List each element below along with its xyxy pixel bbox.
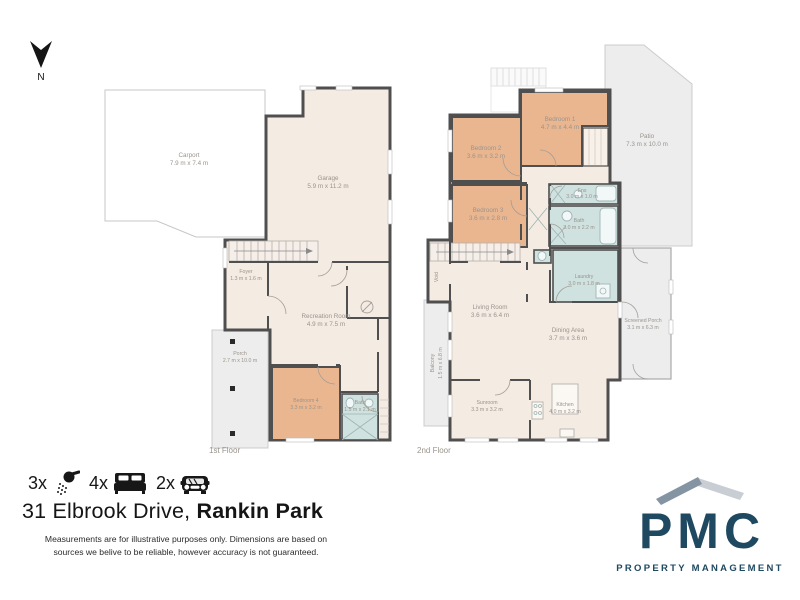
svg-text:3.3 m x 3.2 m: 3.3 m x 3.2 m [290, 405, 321, 411]
svg-text:Porch: Porch [233, 351, 247, 357]
bedroom1-robe [583, 128, 608, 166]
svg-text:3.1 m x 6.3 m: 3.1 m x 6.3 m [627, 325, 658, 331]
stairs-1st [229, 241, 318, 261]
svg-text:Bedroom 1: Bedroom 1 [545, 116, 576, 123]
feature-summary: 3x 4x 2x [28, 470, 210, 496]
svg-text:1.5 m x 6.8 m: 1.5 m x 6.8 m [438, 347, 444, 378]
svg-text:1.3 m x 1.6 m: 1.3 m x 1.6 m [230, 276, 261, 282]
svg-text:3.7 m x 3.6 m: 3.7 m x 3.6 m [549, 335, 587, 342]
feature-bedrooms: 4x [89, 471, 147, 495]
logo-tagline: PROPERTY MANAGEMENT [612, 563, 788, 574]
roof-icon [612, 474, 788, 505]
property-address: 31 Elbrook Drive, Rankin Park [22, 499, 323, 524]
stairs-2nd [430, 243, 520, 261]
svg-text:4.7 m x 4.4 m: 4.7 m x 4.4 m [541, 124, 579, 131]
north-arrow-glyph [30, 41, 52, 68]
svg-text:3.0 m x 1.8 m: 3.0 m x 1.8 m [568, 281, 599, 287]
svg-text:Patio: Patio [640, 133, 655, 140]
room-porch [212, 330, 268, 448]
floor2-caption: 2nd Floor [417, 446, 451, 455]
svg-text:Living Room: Living Room [473, 304, 508, 311]
svg-text:Bedroom 2: Bedroom 2 [471, 145, 502, 152]
svg-text:Garage: Garage [317, 175, 339, 182]
svg-text:Recreation Room: Recreation Room [302, 313, 351, 320]
north-arrow-icon: N [20, 35, 65, 85]
svg-text:Balcony: Balcony [430, 353, 436, 372]
svg-text:Dining Area: Dining Area [552, 327, 585, 334]
svg-text:Void: Void [434, 272, 440, 282]
svg-text:Laundry: Laundry [575, 274, 594, 280]
bed-icon [113, 471, 147, 495]
svg-text:Foyer: Foyer [239, 269, 253, 275]
bathroom-count: 3x [28, 473, 47, 494]
pmc-logo: PMC PROPERTY MANAGEMENT [612, 474, 788, 574]
svg-text:3.6 m x 3.2 m: 3.6 m x 3.2 m [467, 153, 505, 160]
svg-text:3.6 m x 6.4 m: 3.6 m x 6.4 m [471, 312, 509, 319]
svg-text:Bedroom 3: Bedroom 3 [473, 207, 504, 214]
floorplan-page: N [0, 0, 800, 600]
bedroom-count: 4x [89, 473, 108, 494]
disclaimer: Measurements are for illustrative purpos… [18, 533, 354, 559]
svg-text:4.0 m x 3.2 m: 4.0 m x 3.2 m [549, 409, 580, 415]
shower-icon [52, 470, 80, 496]
room-screened-porch [617, 248, 673, 379]
svg-text:Sunroom: Sunroom [476, 400, 497, 406]
svg-text:Screened Porch: Screened Porch [624, 318, 661, 324]
svg-text:3.3 m x 3.2 m: 3.3 m x 3.2 m [471, 407, 502, 413]
car-icon [180, 471, 210, 495]
feature-cars: 2x [156, 471, 210, 495]
address-street: 31 Elbrook Drive, [22, 499, 190, 523]
disclaimer-line2: sources we belive to be reliable, howeve… [18, 546, 354, 559]
disclaimer-line1: Measurements are for illustrative purpos… [18, 533, 354, 546]
svg-text:Kitchen: Kitchen [556, 402, 573, 408]
svg-text:7.9 m x 7.4 m: 7.9 m x 7.4 m [170, 160, 208, 167]
svg-text:3.0 m x 1.0 m: 3.0 m x 1.0 m [566, 194, 597, 200]
svg-text:1.5 m x 2.1 m: 1.5 m x 2.1 m [344, 407, 375, 413]
svg-text:3.0 m x 2.2 m: 3.0 m x 2.2 m [563, 225, 594, 231]
svg-text:Bath: Bath [574, 218, 585, 224]
feature-bathrooms: 3x [28, 470, 80, 496]
svg-text:Bedroom 4: Bedroom 4 [293, 398, 318, 404]
floor1-caption: 1st Floor [209, 446, 240, 455]
svg-text:3.6 m x 2.8 m: 3.6 m x 2.8 m [469, 215, 507, 222]
svg-text:Carport: Carport [179, 152, 200, 159]
svg-text:7.3 m x 10.0 m: 7.3 m x 10.0 m [626, 141, 668, 148]
floor-plan-2nd: Bedroom 1 4.7 m x 4.4 m Bedroom 2 3.6 m … [408, 40, 782, 460]
svg-text:Bath: Bath [355, 400, 366, 406]
car-count: 2x [156, 473, 175, 494]
logo-name: PMC [612, 508, 788, 556]
room-balcony [424, 300, 450, 426]
floor-plan-1st: Carport 7.9 m x 7.4 m Garage 5.9 m x 11.… [25, 80, 405, 460]
wc-nook [534, 250, 551, 263]
address-suburb: Rankin Park [197, 499, 323, 523]
svg-text:4.9 m x 7.5 m: 4.9 m x 7.5 m [307, 321, 345, 328]
svg-text:5.9 m x 11.2 m: 5.9 m x 11.2 m [307, 183, 348, 190]
svg-text:2.7 m x 10.0 m: 2.7 m x 10.0 m [223, 358, 257, 364]
